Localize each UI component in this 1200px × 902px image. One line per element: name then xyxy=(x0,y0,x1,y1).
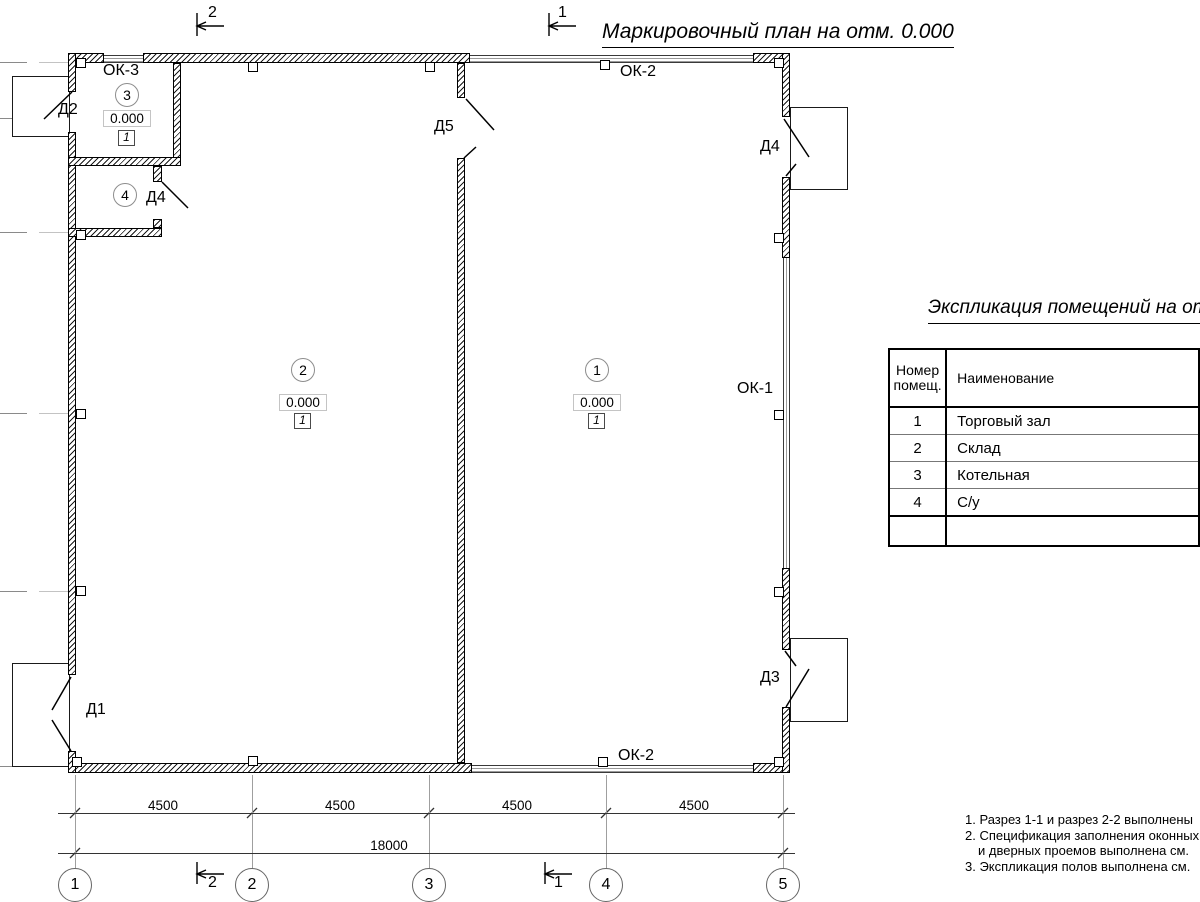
label-door-d3: Д3 xyxy=(760,669,780,687)
room-floor-type-1: 1 xyxy=(588,413,605,429)
extension-line-axis2 xyxy=(252,775,253,869)
grid-bubble-4: 4 xyxy=(589,868,623,902)
dimension-value: 4500 xyxy=(664,798,724,813)
table-cell-num: 3 xyxy=(889,462,946,489)
label-window-ok1: ОК-1 xyxy=(737,380,773,398)
extension-line-axis5 xyxy=(783,775,784,869)
axis-leader-line xyxy=(0,413,68,414)
axis-marker xyxy=(76,586,86,596)
floor-plan-sheet: { "title": "Маркировочный план на отм. 0… xyxy=(0,0,1200,900)
extension-line-axis4 xyxy=(606,775,607,869)
axis-leader-line xyxy=(0,62,68,63)
label-window-ok2-top: ОК-2 xyxy=(620,63,656,81)
extension-line-axis3 xyxy=(429,775,430,869)
axis-leader-line xyxy=(0,232,68,233)
wall-room3-bottom xyxy=(68,157,181,166)
dimension-value: 4500 xyxy=(133,798,193,813)
table-cell-num: 4 xyxy=(889,489,946,517)
label-door-d1: Д1 xyxy=(86,701,106,719)
room-elevation-1: 0.000 xyxy=(573,394,621,411)
wall-bottom-left xyxy=(68,763,472,773)
table-header-room-number: Номер помещ. xyxy=(889,349,946,407)
axis-marker xyxy=(76,58,86,68)
axis-marker xyxy=(248,62,258,72)
table-cell-name: Торговый зал xyxy=(946,407,1199,435)
room-elevation-2: 0.000 xyxy=(279,394,327,411)
dimension-line-total xyxy=(58,853,795,854)
table-header-name: Наименование xyxy=(946,349,1199,407)
dimension-total-value: 18000 xyxy=(359,838,419,853)
note-line: 2. Спецификация заполнения оконных xyxy=(965,828,1200,844)
room-number-3: 3 xyxy=(115,83,139,107)
grid-bubble-5: 5 xyxy=(766,868,800,902)
axis-marker xyxy=(598,757,608,767)
room-elevation-3: 0.000 xyxy=(103,110,151,127)
note-line: 1. Разрез 1-1 и разрез 2-2 выполнены xyxy=(965,812,1200,828)
vestibule-d3 xyxy=(790,638,848,722)
axis-leader-line xyxy=(0,766,12,767)
grid-bubble-1: 1 xyxy=(58,868,92,902)
table-empty-row xyxy=(889,516,1199,546)
axis-marker xyxy=(76,409,86,419)
wall-right-c xyxy=(782,568,790,650)
grid-bubble-3: 3 xyxy=(412,868,446,902)
note-line: и дверных проемов выполнена см. xyxy=(965,843,1200,859)
axis-marker xyxy=(774,410,784,420)
label-door-d2: Д2 xyxy=(58,101,78,119)
note-line: 3. Экспликация полов выполнена см. xyxy=(965,859,1200,875)
section-number-bottom-2: 2 xyxy=(208,874,217,892)
label-door-d4-inner: Д4 xyxy=(146,189,166,207)
room-number-2: 2 xyxy=(291,358,315,382)
wall-right-b xyxy=(782,177,790,258)
wall-middle-b xyxy=(457,158,465,763)
window-ok2-top xyxy=(470,55,753,63)
table-row: 2 Склад xyxy=(889,435,1199,462)
axis-marker xyxy=(774,58,784,68)
table-row: 1 Торговый зал xyxy=(889,407,1199,435)
drawing-title: Маркировочный план на отм. 0.000 xyxy=(602,20,954,48)
table-row: 4 С/у xyxy=(889,489,1199,517)
section-number-bottom-1: 1 xyxy=(554,874,563,892)
room-number-1: 1 xyxy=(585,358,609,382)
dimension-line-segments xyxy=(58,813,795,814)
dimension-value: 4500 xyxy=(487,798,547,813)
table-title: Экспликация помещений на от xyxy=(928,297,1200,324)
wall-room3-right xyxy=(173,63,181,166)
axis-leader-line xyxy=(0,118,12,119)
wall-top-middle xyxy=(143,53,470,63)
room-number-4: 4 xyxy=(113,183,137,207)
vestibule-d1 xyxy=(12,663,70,767)
label-window-ok3: ОК-3 xyxy=(103,62,139,80)
table-row: 3 Котельная xyxy=(889,462,1199,489)
room-floor-type-2: 1 xyxy=(294,413,311,429)
table-cell-name: Котельная xyxy=(946,462,1199,489)
label-door-d4-right: Д4 xyxy=(760,138,780,156)
section-number-top-2: 2 xyxy=(208,4,217,22)
table-cell-num: 2 xyxy=(889,435,946,462)
dimension-value: 4500 xyxy=(310,798,370,813)
label-door-d5: Д5 xyxy=(434,118,454,136)
room-floor-type-3: 1 xyxy=(118,130,135,146)
grid-bubble-2: 2 xyxy=(235,868,269,902)
axis-marker xyxy=(774,587,784,597)
table-cell-name: Склад xyxy=(946,435,1199,462)
axis-marker xyxy=(600,60,610,70)
wall-left-a xyxy=(68,53,76,92)
explication-table: Номер помещ. Наименование 1 Торговый зал… xyxy=(888,348,1200,547)
wall-left-b xyxy=(68,132,76,675)
axis-marker xyxy=(774,233,784,243)
axis-marker xyxy=(76,230,86,240)
table-cell-num: 1 xyxy=(889,407,946,435)
axis-marker xyxy=(774,757,784,767)
wall-middle-a xyxy=(457,63,465,98)
section-cut-arrows xyxy=(197,13,576,884)
wall-stub-up xyxy=(153,219,162,228)
table-header-row: Номер помещ. Наименование xyxy=(889,349,1199,407)
axis-marker xyxy=(248,756,258,766)
section-number-top-1: 1 xyxy=(558,4,567,22)
axis-marker xyxy=(72,757,82,767)
table-cell-name: С/у xyxy=(946,489,1199,517)
axis-marker xyxy=(425,62,435,72)
axis-leader-line xyxy=(0,591,68,592)
wall-stub-down xyxy=(153,166,162,182)
extension-line-axis1 xyxy=(75,775,76,869)
label-window-ok2-bottom: ОК-2 xyxy=(618,747,654,765)
vestibule-d4 xyxy=(790,107,848,190)
window-ok2-bottom xyxy=(472,765,753,773)
table-title-clip: Экспликация помещений на от xyxy=(928,297,1200,324)
window-ok1 xyxy=(783,258,790,568)
general-notes: 1. Разрез 1-1 и разрез 2-2 выполнены 2. … xyxy=(965,812,1200,880)
